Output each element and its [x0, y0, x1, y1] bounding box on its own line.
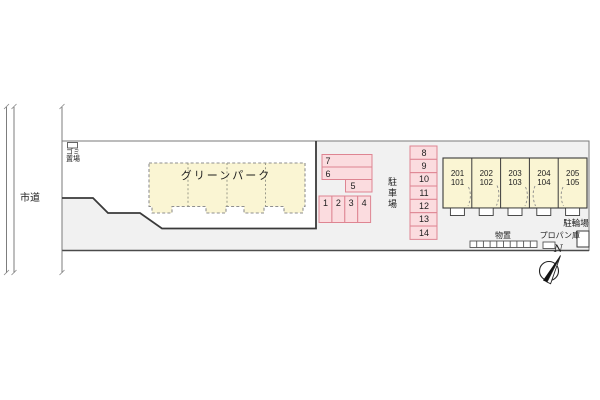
- parking-number-8: 8: [421, 148, 426, 158]
- north-label: N: [554, 244, 563, 255]
- unit-105-lower: 105: [558, 179, 587, 188]
- site-plan: 市道 ゴミ 置場 グリーンパーク 1 2 3 4 5 6 7 8 9 10 11…: [0, 0, 600, 400]
- parking-number-13: 13: [419, 214, 429, 224]
- parking-number-4: 4: [362, 198, 367, 208]
- garbage-label-line2: 置場: [66, 156, 80, 164]
- unit-103-lower: 103: [501, 179, 530, 188]
- storage-label: 物置: [495, 231, 511, 240]
- parking-number-9: 9: [421, 161, 426, 171]
- propane-label: プロパン庫: [540, 231, 580, 240]
- parking-number-10: 10: [419, 174, 429, 184]
- unit-104-lower: 104: [529, 179, 558, 188]
- bicycle-parking-label: 駐輪場: [563, 217, 589, 229]
- parking-number-5: 5: [350, 181, 355, 191]
- unit-label-202: 202 102: [472, 170, 501, 187]
- parking-number-12: 12: [419, 201, 429, 211]
- site-plan-drawing: [0, 0, 600, 400]
- unit-label-203: 203 103: [501, 170, 530, 187]
- garbage-label-line1: ゴミ: [66, 149, 80, 157]
- unit-102-lower: 102: [472, 179, 501, 188]
- main-building-name: グリーンパーク: [181, 167, 271, 183]
- road-label: 市道: [20, 189, 40, 204]
- garbage-area-box: [68, 143, 78, 149]
- parking-number-6: 6: [325, 169, 330, 179]
- parking-number-3: 3: [349, 198, 354, 208]
- unit-label-201: 201 101: [443, 170, 472, 187]
- unit-label-204: 204 104: [529, 170, 558, 187]
- storage-strip: [470, 241, 537, 248]
- parking-stall-5: [346, 180, 373, 193]
- unit-101-lower: 101: [443, 179, 472, 188]
- parking-number-11: 11: [419, 188, 428, 198]
- parking-area-label: 駐車場: [386, 177, 399, 210]
- parking-number-7: 7: [325, 156, 330, 166]
- north-arrow-icon: [540, 256, 561, 284]
- parking-number-14: 14: [419, 228, 429, 238]
- parking-number-2: 2: [336, 198, 341, 208]
- parking-number-1: 1: [323, 198, 328, 208]
- unit-label-205: 205 105: [558, 170, 587, 187]
